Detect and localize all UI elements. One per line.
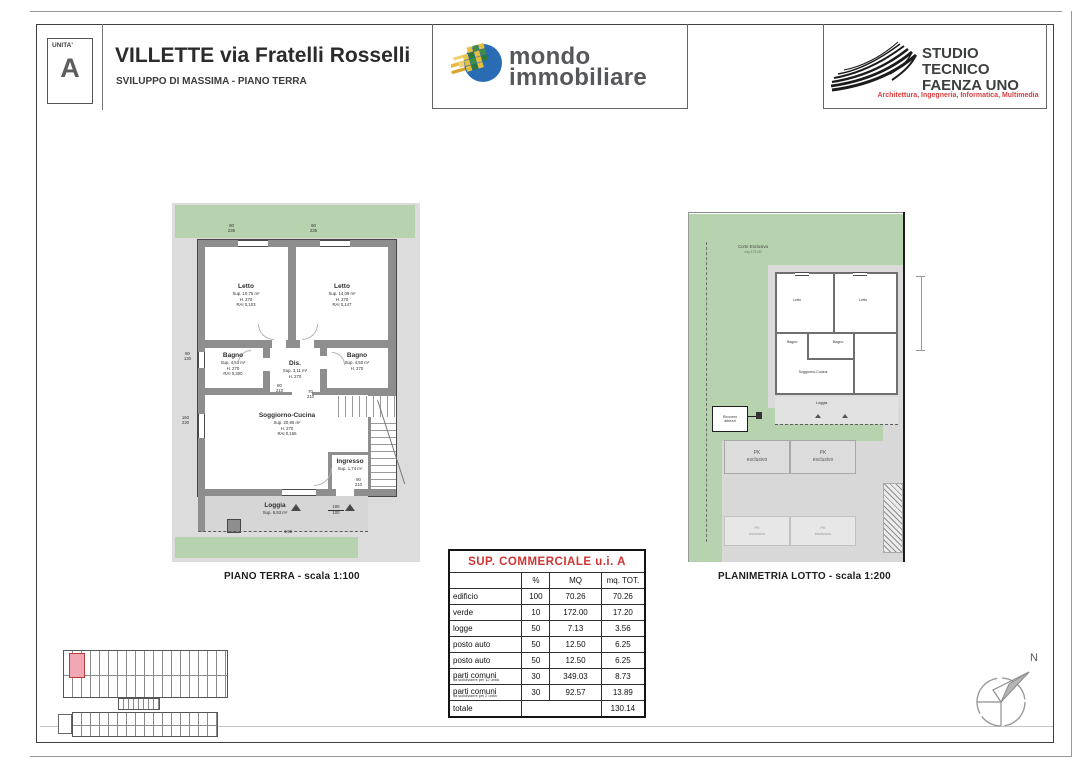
table-row: parti comunida suddividere per 12 unità … xyxy=(449,669,645,685)
floor-plan-caption: PIANO TERRA - scala 1:100 xyxy=(224,571,360,582)
door-gap xyxy=(272,340,286,348)
table-header-row: % MQ mq. TOT. xyxy=(449,573,645,589)
sup-commerciale-table: SUP. COMMERCIALE u.i. A % MQ mq. TOT. ed… xyxy=(448,549,646,718)
parking-pk-faint-2: PK esclusivo xyxy=(790,516,856,546)
room-label-soggiorno: Soggiorno-Cucina Sup. 20,90 m² H. 270 RA… xyxy=(259,412,315,437)
north-compass-icon xyxy=(965,660,1041,737)
mini-wall xyxy=(833,274,835,332)
dim-label: 90 235 xyxy=(225,224,238,234)
window-marker xyxy=(320,240,350,247)
mondo-globe-icon xyxy=(451,40,505,95)
dim-label: 80 130 xyxy=(181,352,194,362)
dim-label: 90 210 xyxy=(352,478,365,488)
dim-label: 90 235 xyxy=(307,224,320,234)
dim-bracket xyxy=(921,276,922,350)
room-label-letto-2: Letto Sup. 14,09 m² H. 270 RAI 0,147 xyxy=(329,283,356,308)
mondo-wordmark: mondo immobiliare xyxy=(509,46,647,88)
room-label-letto-1: Letto Sup. 10,75 m² H. 270 RAI 0,103 xyxy=(233,283,260,308)
slider-window xyxy=(282,489,316,496)
table-row: edificio 100 70.26 70.26 xyxy=(449,589,645,605)
drawing-sheet: UNITA' A VILLETTE via Fratelli Rosselli … xyxy=(0,0,1086,768)
mini-wall xyxy=(853,334,855,393)
lot-plan-caption: PLANIMETRIA LOTTO - scala 1:200 xyxy=(718,571,891,582)
mini-room-label: Letto xyxy=(859,298,867,302)
mondo-word-2: immobiliare xyxy=(509,67,647,88)
mini-window xyxy=(853,272,867,276)
mini-loggia-dashed xyxy=(775,424,898,425)
window-marker xyxy=(238,240,268,247)
lot-boundary-dashed xyxy=(706,242,707,542)
dim-bracket-tick xyxy=(916,276,925,277)
unit-label: UNITA' xyxy=(48,39,92,49)
table-row-totale: totale 130.14 xyxy=(449,701,645,718)
stairs-upper-run xyxy=(332,396,396,417)
room-label-dis: Dis. Sup. 3,11 m² H. 270 xyxy=(283,360,307,379)
header-divider xyxy=(102,24,103,110)
garden-strip-top xyxy=(175,205,415,238)
door-gap xyxy=(300,340,314,348)
mini-wall xyxy=(807,332,809,358)
mini-window xyxy=(795,272,809,276)
mini-room-label: Letto xyxy=(793,298,801,302)
lot-top-line xyxy=(688,212,904,213)
key-plan-row-1 xyxy=(63,650,228,698)
studio-tecnico-mark-icon xyxy=(828,34,920,99)
key-plan-row-2 xyxy=(72,712,218,737)
scan-edge-right xyxy=(1071,11,1072,757)
lot-left-line xyxy=(688,212,689,562)
page-title: VILLETTE via Fratelli Rosselli xyxy=(115,44,410,68)
unit-box: UNITA' A xyxy=(47,38,93,104)
corte-esclusiva-label: Corte Esclusiva mq 172,00 xyxy=(730,245,776,254)
mini-room-label: Soggiorno-Cucina xyxy=(791,370,835,374)
room-label-ingresso: Ingresso Sup. 1,74 m² xyxy=(336,458,363,472)
dim-length: 4,55 xyxy=(280,530,296,535)
parking-pk-2: PK esclusivo xyxy=(790,440,856,474)
door-gap xyxy=(320,356,327,369)
lot-section-line xyxy=(903,212,905,562)
table-row: logge 50 7.13 3.56 xyxy=(449,621,645,637)
loggia-wall xyxy=(198,496,205,532)
mondo-logo-box: mondo immobiliare xyxy=(432,24,688,109)
shed-tick-box xyxy=(756,412,762,419)
shed-label: Ricovero attrezzi xyxy=(719,415,741,423)
compass-north-label: N xyxy=(1030,652,1038,664)
studio-tagline: Architettura, Ingegneria, Informatica, M… xyxy=(872,92,1044,99)
mini-room-label: Bagno xyxy=(787,340,797,344)
dim-label: 80 210 xyxy=(273,384,286,394)
door-gap xyxy=(263,358,270,371)
studio-line-1: STUDIO TECNICO xyxy=(922,46,1046,78)
studio-wordmark: STUDIO TECNICO FAENZA UNO xyxy=(922,46,1046,94)
scan-edge-bottom xyxy=(30,756,1072,757)
page-subtitle: SVILUPPO DI MASSIMA - PIANO TERRA xyxy=(116,76,307,87)
entry-door-gap xyxy=(336,489,354,496)
table-row: verde 10 172.00 17.20 xyxy=(449,605,645,621)
parking-pk-1: PK esclusivo xyxy=(724,440,790,474)
scan-edge-top xyxy=(30,11,1062,12)
mini-house: Letto Letto Bagno Bagno Soggiorno-Cucina xyxy=(775,272,898,395)
table-row: posto auto 50 12.50 6.25 xyxy=(449,653,645,669)
key-plan-highlight-unit xyxy=(69,653,85,678)
dim-label: 160 230 xyxy=(178,416,193,426)
dim-fraction: 100 100 xyxy=(328,505,344,516)
threshold-marker xyxy=(345,504,355,511)
parking-pk-faint-1: PK esclusivo xyxy=(724,516,790,546)
room-label-loggia: Loggia Sup. 6,93 m² xyxy=(263,502,288,516)
dim-bracket-tick xyxy=(916,350,925,351)
mini-loggia-label: Loggia xyxy=(816,401,827,405)
window-marker xyxy=(198,414,205,438)
unit-value: A xyxy=(48,53,92,84)
table-row: parti comunida suddividere per 2 unità 3… xyxy=(449,685,645,701)
mini-wall xyxy=(777,332,896,334)
ingresso-wall-h xyxy=(328,452,368,455)
threshold-marker xyxy=(291,504,301,511)
table-row: posto auto 50 12.50 6.25 xyxy=(449,637,645,653)
mini-threshold xyxy=(815,414,821,418)
room-label-bagno-1: Bagno Sup. 4,51 m² H. 270 RAI 0,200 xyxy=(221,352,246,377)
window-marker xyxy=(198,352,205,368)
key-plan-stair-tab xyxy=(118,698,160,710)
stairs-side-run xyxy=(371,417,396,489)
mini-wall xyxy=(807,358,855,360)
table-title: SUP. COMMERCIALE u.i. A xyxy=(449,550,645,573)
mini-threshold xyxy=(842,414,848,418)
mini-loggia xyxy=(775,397,898,424)
studio-logo-box: STUDIO TECNICO FAENZA UNO Architettura, … xyxy=(823,24,1047,109)
room-label-bagno-2: Bagno Sup. 4,50 m² H. 270 xyxy=(345,352,370,371)
gravel-strip xyxy=(883,483,903,553)
shed-box: Ricovero attrezzi xyxy=(712,406,748,432)
mini-room-label: Bagno xyxy=(833,340,843,344)
dim-label: 70 210 xyxy=(304,390,317,400)
key-plan-annex xyxy=(58,714,72,734)
garden-strip-bottom xyxy=(175,537,358,558)
